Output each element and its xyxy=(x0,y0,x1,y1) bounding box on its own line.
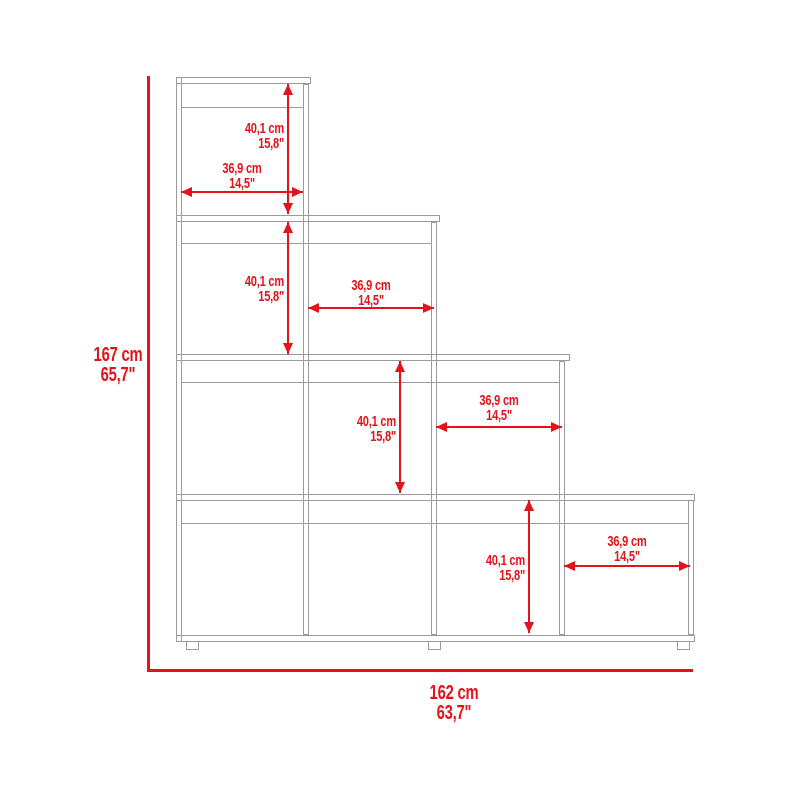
dimension-value-cm: 36,9 cm xyxy=(455,393,544,408)
width-label-tier3: 36,9 cm 14,5" xyxy=(455,393,544,423)
dimension-value-in: 14,5" xyxy=(455,408,544,423)
dimension-diagram: 167 cm 65,7" 162 cm 63,7" 40,1 cm 15,8" … xyxy=(0,0,800,800)
dimension-value-cm: 167 cm xyxy=(74,345,163,365)
dimension-value-cm: 36,9 cm xyxy=(583,534,672,549)
foot-right xyxy=(677,642,690,650)
dimension-value-in: 15,8" xyxy=(207,289,284,304)
height-label-tier2: 40,1 cm 15,8" xyxy=(207,274,284,304)
width-label-tier2: 36,9 cm 14,5" xyxy=(327,278,416,308)
dimension-value-in: 14,5" xyxy=(198,176,287,191)
shelf-board-tier4-top xyxy=(176,494,695,501)
dimension-value-cm: 40,1 cm xyxy=(448,553,525,568)
back-rail-row2 xyxy=(182,243,431,244)
height-dimension-tier2 xyxy=(287,222,289,354)
back-rail-row1 xyxy=(182,107,303,108)
width-dimension-tier4 xyxy=(564,565,690,567)
dimension-value-in: 15,8" xyxy=(319,429,396,444)
overall-width-line xyxy=(147,669,693,672)
width-label-tier4: 36,9 cm 14,5" xyxy=(583,534,672,564)
dimension-value-cm: 36,9 cm xyxy=(198,161,287,176)
dimension-value-in: 15,8" xyxy=(448,568,525,583)
width-label-tier1: 36,9 cm 14,5" xyxy=(198,161,287,191)
dimension-value-cm: 40,1 cm xyxy=(207,274,284,289)
width-dimension-tier3 xyxy=(436,426,562,428)
shelf-board-tier2-top xyxy=(176,215,440,222)
dimension-value-cm: 36,9 cm xyxy=(327,278,416,293)
overall-width-label: 162 cm 63,7" xyxy=(410,683,499,723)
back-rail-row4 xyxy=(182,523,688,524)
dimension-value-in: 65,7" xyxy=(74,365,163,385)
foot-middle xyxy=(428,642,441,650)
dimension-value-in: 14,5" xyxy=(327,293,416,308)
height-dimension-tier1 xyxy=(287,84,289,214)
back-rail-row3 xyxy=(182,382,559,383)
dimension-value-in: 14,5" xyxy=(583,549,672,564)
overall-height-label: 167 cm 65,7" xyxy=(74,345,163,385)
foot-left xyxy=(186,642,199,650)
shelf-board-tier1-top xyxy=(176,77,311,84)
height-dimension-tier4 xyxy=(528,500,530,633)
shelf-board-tier3-top xyxy=(176,354,570,361)
bottom-board xyxy=(176,635,695,642)
dimension-value-in: 15,8" xyxy=(207,136,284,151)
dimension-value-in: 63,7" xyxy=(410,703,499,723)
dimension-value-cm: 40,1 cm xyxy=(319,414,396,429)
height-label-tier4: 40,1 cm 15,8" xyxy=(448,553,525,583)
height-label-tier1: 40,1 cm 15,8" xyxy=(207,121,284,151)
dimension-value-cm: 162 cm xyxy=(410,683,499,703)
height-dimension-tier3 xyxy=(399,361,401,493)
height-label-tier3: 40,1 cm 15,8" xyxy=(319,414,396,444)
dimension-value-cm: 40,1 cm xyxy=(207,121,284,136)
